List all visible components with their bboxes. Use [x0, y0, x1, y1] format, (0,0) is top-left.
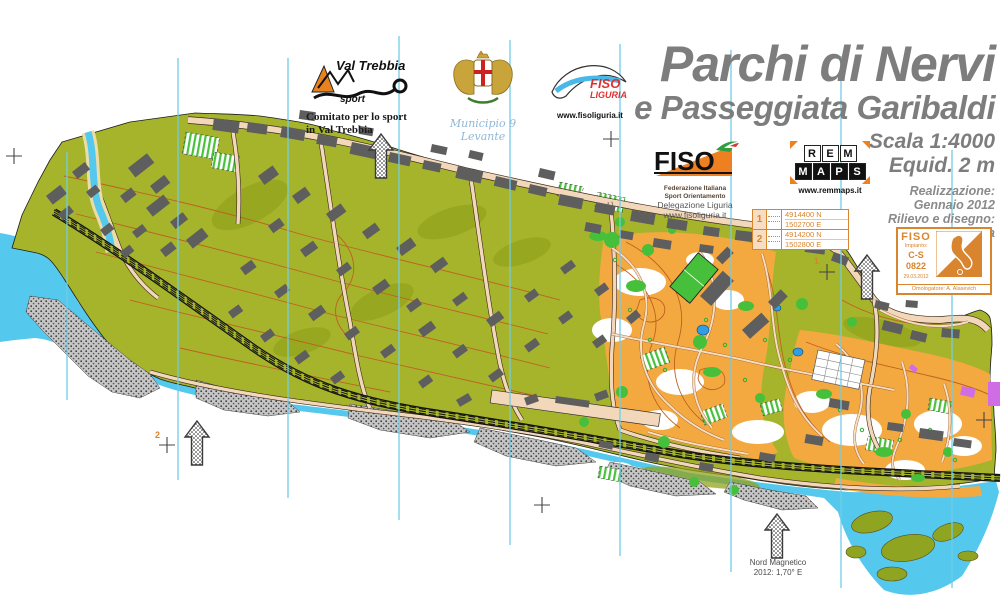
svg-text:LIGURIA: LIGURIA	[590, 90, 627, 100]
remmaps-logo: R E M M A P S www.remmaps.it	[790, 141, 870, 195]
municipio-crest: Municipio 9 Levante	[428, 50, 538, 143]
magnetic-north-caption: Nord Magnetico 2012: 1,70° E	[732, 558, 824, 577]
georef-marker-1: 1	[814, 256, 819, 266]
georef-mini-cell	[767, 210, 782, 229]
svg-text:Val Trebbia: Val Trebbia	[336, 58, 405, 73]
georef-row: 2 4914200 N 1502800 E	[753, 230, 848, 249]
map-sheet: Val Trebbia sport Comitato per lo sport …	[0, 0, 1005, 615]
building	[538, 168, 556, 180]
fiso-federation-caption: Federazione Italiana Sport Orientamento	[646, 185, 744, 200]
svg-text:FISO: FISO	[590, 76, 620, 91]
fiso-liguria-logo: FISO LIGURIA www.fisoliguria.it	[548, 60, 632, 120]
registration-cross-icon	[534, 497, 550, 513]
building	[468, 150, 483, 161]
fiso-liguria-art: FISO LIGURIA	[548, 60, 630, 106]
val-trebbia-logo: Val Trebbia sport Comitato per lo sport …	[306, 56, 416, 137]
homologation-stamp: FISO Impianto: C-S 0822 29.03.2012 Omolo…	[896, 227, 992, 295]
remmaps-url: www.remmaps.it	[790, 186, 870, 195]
north-arrow-icon	[185, 421, 209, 465]
svg-text:sport: sport	[340, 94, 366, 105]
orienteering-flag-italy-icon	[936, 231, 982, 277]
map-title: Parchi di Nervi	[634, 38, 995, 90]
registration-cross-icon	[6, 148, 22, 164]
remmaps-tiles: R E M M A P S	[790, 141, 870, 184]
map-subtitle: e Passeggiata Garibaldi	[634, 90, 995, 126]
georef-east: 1502800 E	[785, 240, 848, 249]
stamp-approver: Omologatore: A. Alasevich	[898, 284, 990, 293]
magnetic-north-arrow-icon	[765, 514, 789, 558]
georef-north: 4914400 N	[785, 210, 848, 220]
building	[430, 144, 447, 155]
georef-marker-2: 2	[155, 430, 160, 440]
georef-row: 1 4914400 N 1502700 E	[753, 210, 848, 230]
genoa-crest-icon	[444, 50, 522, 112]
georef-north: 4914200 N	[785, 230, 848, 240]
fiso-delegazione-art: FISO	[646, 138, 742, 180]
building	[905, 300, 918, 308]
fiso-delegation-caption: Delegazione Liguria www.fisoliguria.it	[646, 200, 744, 220]
municipio-caption: Municipio 9 Levante	[428, 117, 538, 143]
registration-cross-icon	[159, 437, 175, 453]
val-trebbia-logo-art: Val Trebbia sport	[306, 56, 414, 106]
val-trebbia-caption: Comitato per lo sport in Val Trebbia	[306, 111, 416, 137]
building	[941, 328, 960, 339]
georef-mini-cell	[767, 230, 782, 249]
georeference-box: 1 4914400 N 1502700 E 2 4914200 N 150280…	[752, 209, 849, 250]
fiso-delegazione-logo: FISO Federazione Italiana Sport Orientam…	[646, 138, 744, 220]
svg-text:FISO: FISO	[654, 146, 715, 176]
fiso-liguria-url: www.fisoliguria.it	[548, 111, 632, 120]
georef-east: 1502700 E	[785, 220, 848, 229]
registration-cross-icon	[603, 131, 619, 147]
